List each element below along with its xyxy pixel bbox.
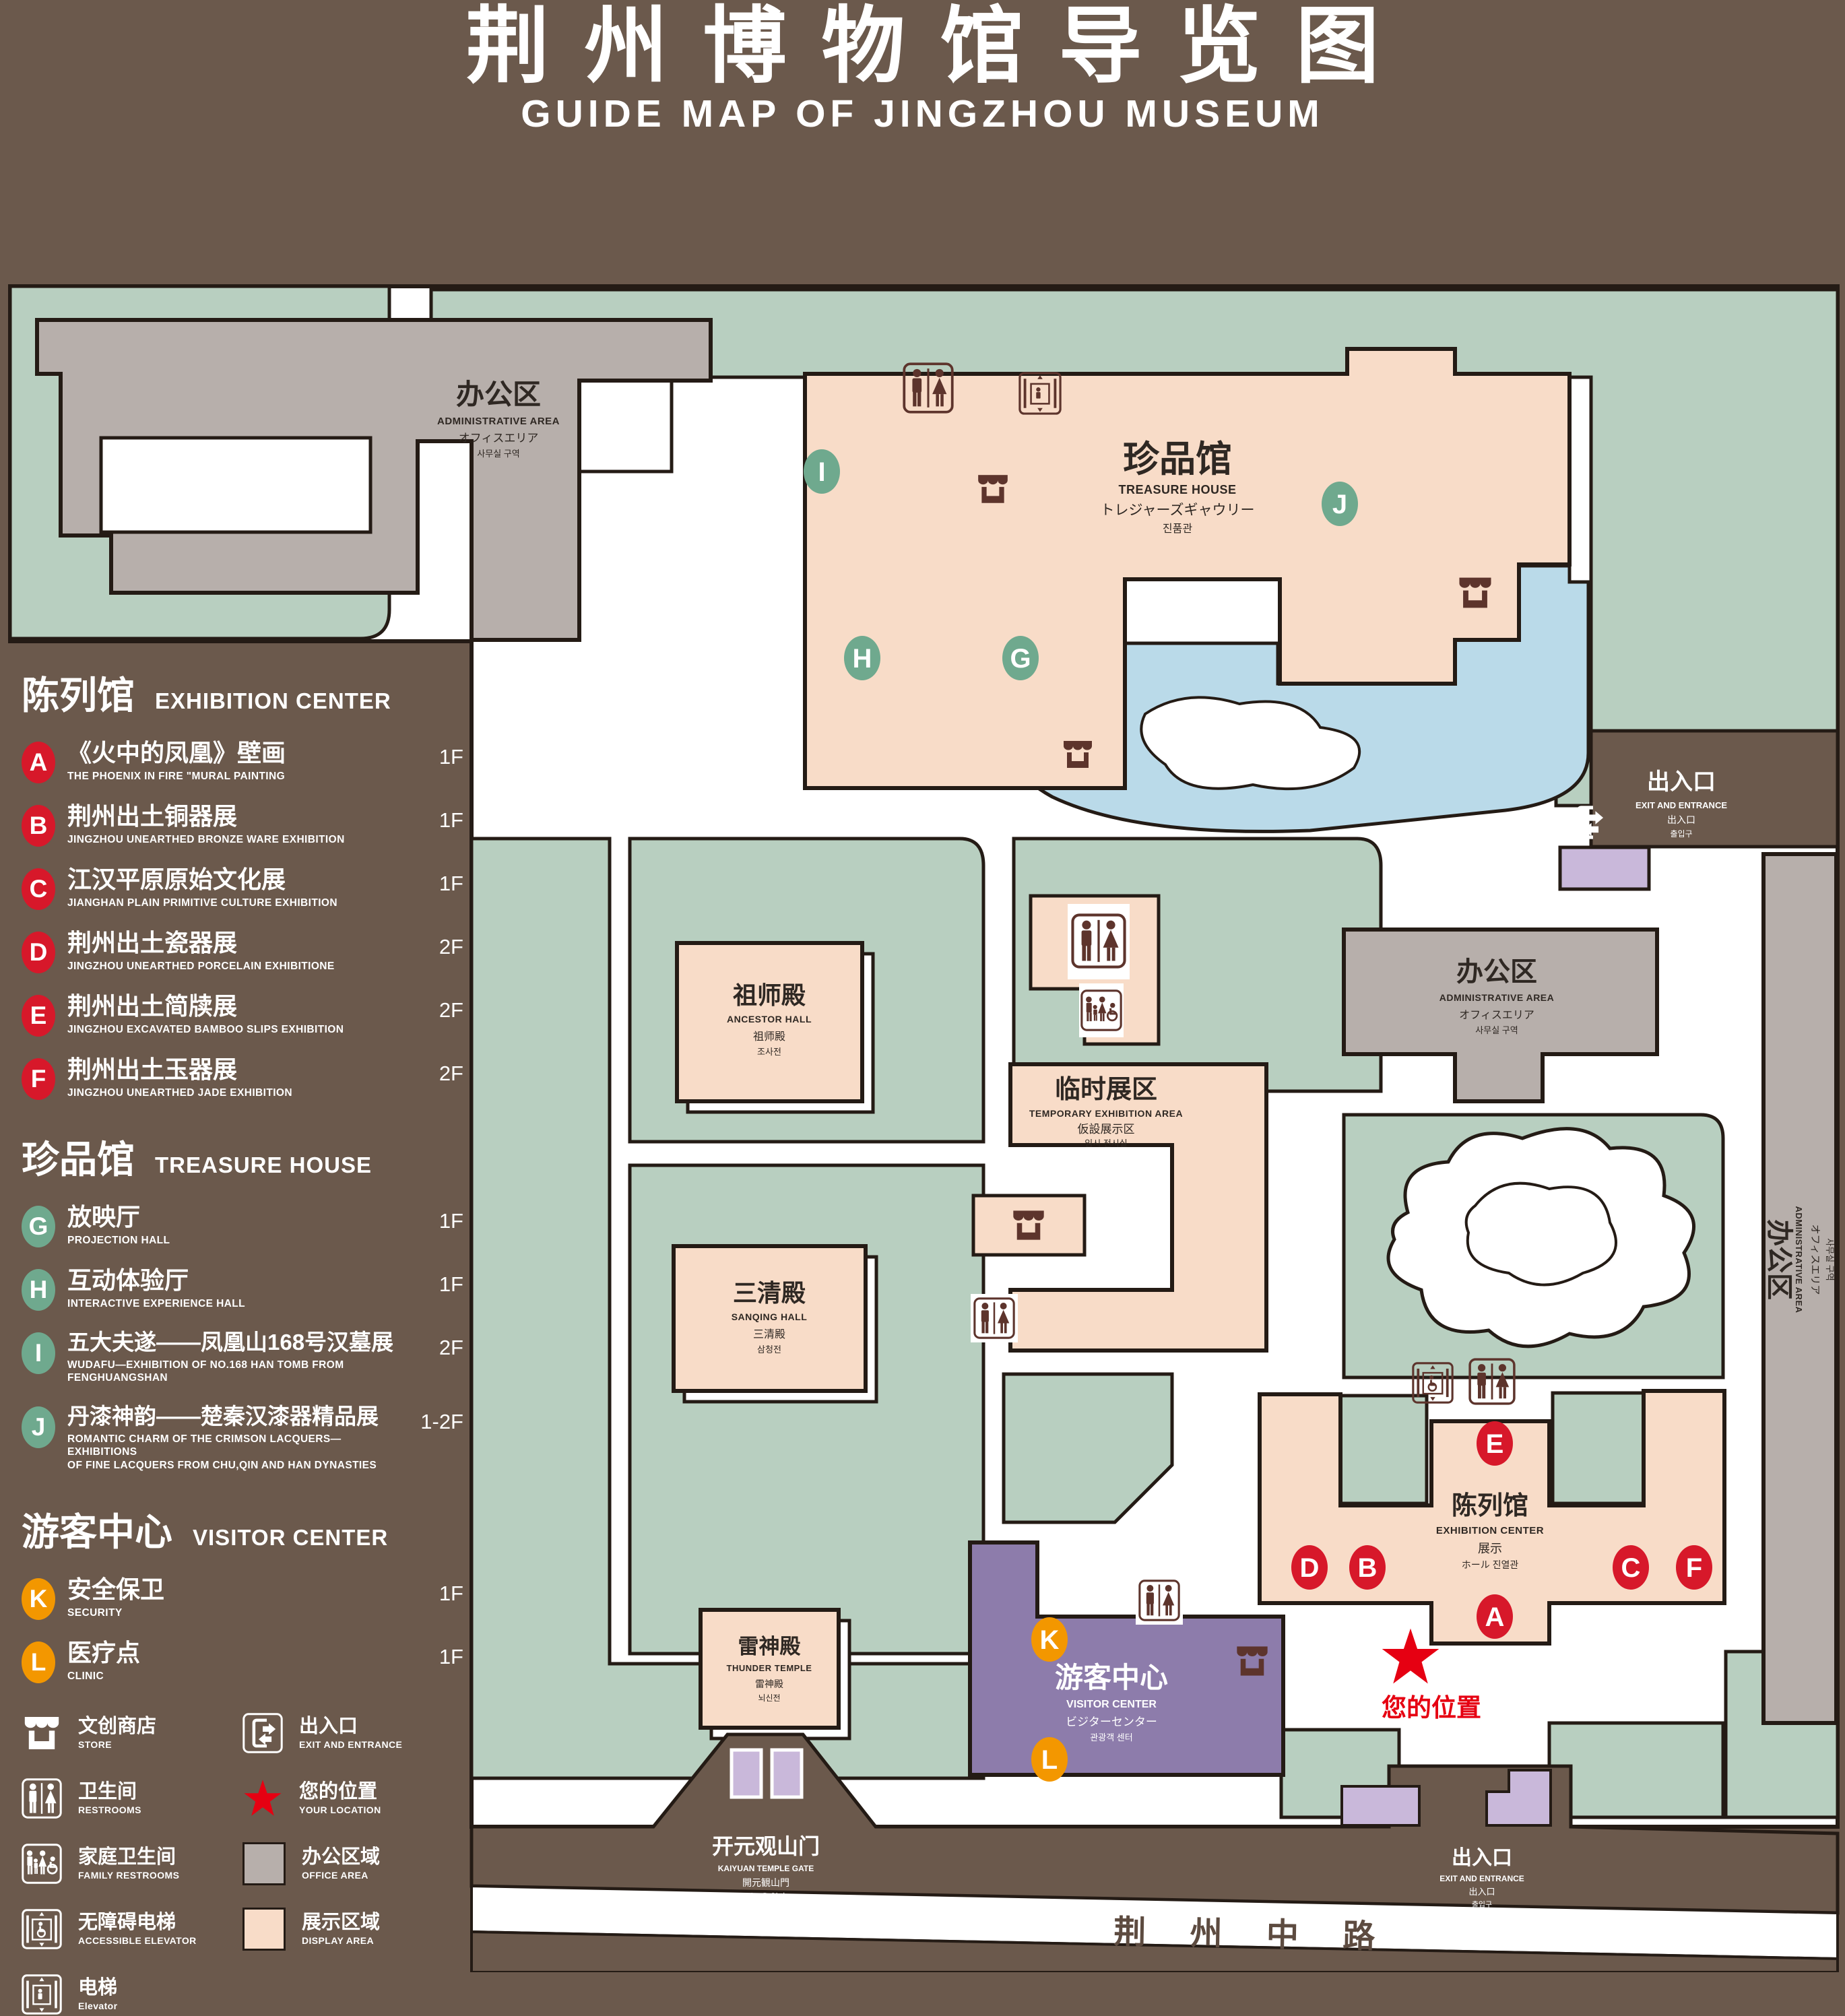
exit-ne-label-en: EXIT AND ENTRANCE [1636,800,1727,810]
marker-badge-j: J [22,1406,55,1448]
legend-section-visitor-center: 游客中心 VISITOR CENTER [22,1502,463,1557]
symbol-label-en: ACCESSIBLE ELEVATOR [78,1935,197,1946]
legend-symbol-exit: 出入口 EXIT AND ENTRANCE [242,1712,463,1755]
symbol-label-zh: 无障碍电梯 [78,1912,197,1932]
entrance-gate-block [1560,847,1649,889]
legend-item-g: G 放映厅 PROJECTION HALL 1F [22,1204,463,1247]
item-title: 荆州出土玉器展 [67,1056,292,1083]
symbol-label-en: Elevator [78,2001,117,2011]
symbol-label-en: FAMILY RESTROOMS [78,1870,179,1881]
temporary-label-en: TEMPORARY EXHIBITION AREA [1029,1108,1183,1119]
thunder-temple-label-ja: 雷神殿 [755,1679,783,1689]
item-title: 医疗点 [67,1639,140,1666]
thunder-temple-building: 雷神殿 THUNDER TEMPLE 雷神殿 뇌신전 [701,1610,849,1738]
svg-text:H: H [853,644,872,674]
park-ex-ne [1553,1393,1652,1503]
exit-ne-label-ko: 출입구 [1670,829,1692,839]
marker-j: J [1322,482,1358,526]
item-floor: 1F [439,745,463,769]
legend-item-i: I 五大夫遂——凤凰山168号汉墓展 WUDAFU—EXHIBITION OF … [22,1330,463,1385]
temporary-label-zh: 临时展区 [1055,1076,1157,1104]
svg-text:K: K [1040,1625,1060,1655]
legend-symbol-office-area: 办公区域 OFFICE AREA [242,1842,463,1885]
item-floor: 2F [439,1336,463,1360]
admin-strip-label-zh: 办公区 [1764,1219,1794,1300]
item-title: 荆州出土瓷器展 [67,930,335,956]
symbol-label-zh: 家庭卫生间 [78,1847,179,1867]
section-heading-zh: 珍品馆 [22,1130,135,1184]
your-location-label: 您的位置 [1382,1694,1481,1722]
office-area-swatch [242,1842,286,1885]
sanqing-hall-label-zh: 三清殿 [733,1279,806,1307]
treasure-house-label-zh: 珍品馆 [1123,439,1232,480]
exit-ne-label-zh: 出入口 [1647,769,1716,795]
marker-c: C [1613,1545,1649,1590]
item-subtitle: CLINIC [67,1670,140,1683]
item-title: 江汉平原原始文化展 [67,866,337,893]
symbol-label-zh: 办公区域 [302,1847,380,1867]
svg-text:I: I [818,457,825,487]
treasure-house-label-en: TREASURE HOUSE [1118,483,1236,496]
item-title: 荆州出土简牍展 [67,993,344,1020]
item-subtitle-2: OF FINE LACQUERS FROM CHU,QIN AND HAN DY… [67,1459,399,1472]
item-title: 放映厅 [67,1204,170,1231]
marker-k: K [1031,1617,1068,1662]
admin-e-label-zh: 办公区 [1456,957,1537,987]
symbol-label-zh: 您的位置 [299,1782,381,1802]
treasure-house-label-ko: 진품관 [1163,523,1192,535]
exit-icon [242,1712,283,1755]
admin-e-label-ja: オフィスエリア [1459,1010,1534,1021]
ancestor-hall-label-ja: 祖师殿 [753,1031,785,1043]
thunder-temple-label-en: THUNDER TEMPLE [727,1663,812,1673]
ancestor-hall-label-en: ANCESTOR HALL [727,1014,812,1025]
item-subtitle: JINGZHOU UNEARTHED JADE EXHIBITION [67,1086,292,1099]
item-floor: 2F [439,998,463,1022]
legend-item-a: A 《火中的凤凰》壁画 THE PHOENIX IN FIRE "MURAL P… [22,740,463,783]
symbol-label-en: STORE [78,1739,156,1750]
marker-i: I [804,449,840,494]
admin-strip-label-ja: オフィスエリア [1809,1225,1821,1295]
marker-badge-b: B [22,805,55,847]
admin-strip-label-en: ADMINISTRATIVE AREA [1794,1206,1804,1313]
symbol-legend: 文创商店 STORE 出入口 EXIT AND ENTRANCE 卫生间 RES… [22,1712,463,2016]
marker-badge-c: C [22,868,55,910]
marker-badge-k: K [22,1578,55,1620]
ancestor-hall-label-ko: 조사전 [757,1047,781,1057]
section-heading-zh: 陈列馆 [22,665,135,720]
gate-door [772,1750,802,1797]
item-subtitle: JINGZHOU EXCAVATED BAMBOO SLIPS EXHIBITI… [67,1023,344,1036]
item-title: 五大夫遂——凤凰山168号汉墓展 [67,1330,399,1355]
gate-label-ko: 산문을 열다 [746,1892,786,1901]
temporary-label-ko: 임시 전시실 [1085,1138,1127,1148]
restrooms-icon [22,1777,62,1820]
item-subtitle: WUDAFU—EXHIBITION OF NO.168 HAN TOMB FRO… [67,1359,399,1385]
gate-label-zh: 开元观山门 [712,1834,820,1858]
marker-b: B [1349,1545,1386,1590]
admin-e-label-en: ADMINISTRATIVE AREA [1439,992,1555,1003]
svg-text:G: G [1010,644,1031,674]
svg-text:E: E [1486,1429,1504,1459]
exhibition-center-label-ko: ホール 진열관 [1462,1559,1519,1570]
visitor-center-label-ko: 관광객 센터 [1090,1732,1132,1743]
item-title: 互动体验厅 [67,1267,245,1294]
temporary-label-ja: 仮設展示区 [1078,1123,1135,1136]
admin-strip-east: 사무실 구역 オフィスエリア ADMINISTRATIVE AREA 办公区 [1763,854,1836,1723]
svg-text:L: L [1041,1745,1058,1775]
marker-badge-i: I [22,1332,55,1374]
item-subtitle: JIANGHAN PLAIN PRIMITIVE CULTURE EXHIBIT… [67,897,337,909]
display-area-swatch [242,1908,286,1951]
item-floor: 1F [439,808,463,833]
legend-symbol-display-area: 展示区域 DISPLAY AREA [242,1908,463,1951]
item-title: 荆州出土铜器展 [67,803,345,830]
item-floor: 1F [439,872,463,896]
item-title: 《火中的凤凰》壁画 [67,740,286,767]
item-floor: 1F [439,1272,463,1297]
gate-door [732,1750,761,1797]
symbol-label-en: EXIT AND ENTRANCE [299,1739,402,1750]
marker-badge-g: G [22,1206,55,1247]
marker-badge-h: H [22,1269,55,1311]
legend-item-h: H 互动体验厅 INTERACTIVE EXPERIENCE HALL 1F [22,1267,463,1311]
item-floor: 1F [439,1582,463,1606]
legend-item-b: B 荆州出土铜器展 JINGZHOU UNEARTHED BRONZE WARE… [22,803,463,847]
treasure-house-label-ja: トレジャーズギャウリー [1101,502,1255,518]
exit-s-label-en: EXIT AND ENTRANCE [1439,1874,1524,1883]
exit-ne-label-ja: 出入口 [1667,814,1695,825]
legend-item-f: F 荆州出土玉器展 JINGZHOU UNEARTHED JADE EXHIBI… [22,1056,463,1100]
sanqing-hall-building: 三清殿 SANQING HALL 三清殿 삼청전 [674,1246,876,1402]
road-name: 荆 州 中 路 [1113,1914,1393,1955]
legend-symbol-accessible-elevator: 无障碍电梯 ACCESSIBLE ELEVATOR [22,1908,242,1951]
admin-nw-label-ja: オフィスエリア [459,432,539,445]
exit-s-label-ja: 出入口 [1468,1887,1495,1897]
legend-item-e: E 荆州出土简牍展 JINGZHOU EXCAVATED BAMBOO SLIP… [22,993,463,1037]
exit-s-label-ko: 출입구 [1472,1900,1492,1909]
exhibition-center-label-zh: 陈列馆 [1452,1492,1528,1520]
visitor-center-label-en: VISITOR CENTER [1066,1699,1157,1710]
exhibition-center-label-ja: 展示 [1478,1542,1502,1555]
marker-badge-l: L [22,1641,55,1683]
marker-g: G [1002,636,1039,680]
legend-symbol-store: 文创商店 STORE [22,1712,242,1755]
svg-text:F: F [1686,1553,1702,1583]
marker-l: L [1031,1737,1068,1782]
legend-item-c: C 江汉平原原始文化展 JIANGHAN PLAIN PRIMITIVE CUL… [22,866,463,910]
elevator-icon [22,1973,62,2016]
symbol-label-en: YOUR LOCATION [299,1804,381,1815]
legend-symbol-your-location: 您的位置 YOUR LOCATION [242,1777,463,1820]
admin-nw-label-zh: 办公区 [456,379,541,410]
legend-item-k: K 安全保卫 SECURITY 1F [22,1576,463,1620]
legend-section-exhibition-center: 陈列馆 EXHIBITION CENTER [22,665,463,720]
symbol-label-zh: 文创商店 [78,1716,156,1736]
admin-nw-label-en: ADMINISTRATIVE AREA [437,416,560,427]
marker-h: H [844,636,880,680]
visitor-center-label-zh: 游客中心 [1055,1662,1168,1693]
symbol-label-en: RESTROOMS [78,1804,141,1815]
symbol-label-en: OFFICE AREA [302,1870,380,1881]
item-floor: 1-2F [420,1410,463,1434]
item-floor: 2F [439,935,463,959]
legend-symbol-elevator: 电梯 Elevator [22,1973,247,2016]
legend-section-treasure-house: 珍品馆 TREASURE HOUSE [22,1130,463,1184]
exhibition-center-label-en: EXHIBITION CENTER [1436,1525,1544,1536]
symbol-label-en: DISPLAY AREA [302,1935,380,1946]
item-floor: 1F [439,1645,463,1669]
store-icon [22,1712,62,1755]
item-subtitle: SECURITY [67,1606,164,1619]
marker-d: D [1291,1545,1328,1590]
legend-item-j: J 丹漆神韵——楚秦汉漆器精品展 ROMANTIC CHARM OF THE C… [22,1404,463,1472]
marker-f: F [1676,1545,1712,1590]
marker-badge-d: D [22,932,55,973]
thunder-temple-label-zh: 雷神殿 [738,1635,801,1658]
exit-s-label-zh: 出入口 [1452,1847,1512,1869]
ancestor-hall-building: 祖师殿 ANCESTOR HALL 祖师殿 조사전 [677,943,873,1112]
sanqing-hall-label-en: SANQING HALL [732,1311,808,1322]
section-heading-en: VISITOR CENTER [193,1525,388,1551]
visitor-center-label-ja: ビジターセンター [1066,1716,1157,1728]
marker-badge-a: A [22,742,55,783]
item-subtitle: ROMANTIC CHARM OF THE CRIMSON LACQUERS—E… [67,1433,399,1459]
item-floor: 2F [439,1062,463,1086]
item-subtitle: JINGZHOU UNEARTHED PORCELAIN EXHIBITIONE [67,960,335,973]
legend-item-l: L 医疗点 CLINIC 1F [22,1639,463,1683]
legend-item-d: D 荆州出土瓷器展 JINGZHOU UNEARTHED PORCELAIN E… [22,930,463,973]
svg-text:B: B [1358,1553,1378,1583]
accessible-elevator-icon [22,1908,62,1951]
symbol-label-zh: 出入口 [299,1716,402,1736]
item-title: 丹漆神韵——楚秦汉漆器精品展 [67,1404,399,1429]
symbol-label-zh: 展示区域 [302,1912,380,1932]
legend-panel: 陈列馆 EXHIBITION CENTER A 《火中的凤凰》壁画 THE PH… [22,665,463,2016]
item-floor: 1F [439,1209,463,1233]
marker-badge-e: E [22,995,55,1037]
park-court-lower [630,1165,983,1654]
marker-badge-f: F [22,1058,55,1100]
gate-label-en: KAIYUAN TEMPLE GATE [718,1864,814,1873]
sanqing-hall-label-ko: 삼청전 [757,1344,781,1355]
family-restrooms-icon [22,1842,62,1885]
item-subtitle: JINGZHOU UNEARTHED BRONZE WARE EXHIBITIO… [67,833,345,846]
svg-text:A: A [1485,1602,1505,1632]
park-ex-nw [1332,1396,1427,1503]
admin-e-label-ko: 사무실 구역 [1475,1025,1518,1035]
svg-text:C: C [1621,1553,1641,1583]
item-subtitle: THE PHOENIX IN FIRE "MURAL PAINTING [67,770,286,783]
svg-text:D: D [1300,1553,1320,1583]
svg-text:J: J [1332,490,1347,519]
your-location-star [242,1777,283,1820]
entrance-gate-block [1342,1786,1419,1825]
item-title: 安全保卫 [67,1576,164,1603]
symbol-label-zh: 电梯 [78,1978,117,1998]
symbol-label-zh: 卫生间 [78,1782,141,1802]
section-heading-en: TREASURE HOUSE [155,1152,372,1178]
legend-symbol-restrooms: 卫生间 RESTROOMS [22,1777,242,1820]
legend-symbol-family-restrooms: 家庭卫生间 FAMILY RESTROOMS [22,1842,242,1885]
sanqing-hall-label-ja: 三清殿 [753,1328,785,1340]
gate-label-ja: 開元観山門 [742,1877,789,1888]
admin-nw-label-ko: 사무실 구역 [477,449,519,459]
section-heading-zh: 游客中心 [22,1502,172,1557]
admin-strip-label-ko: 사무실 구역 [1825,1238,1835,1280]
park-ex-se [1549,1723,1723,1817]
thunder-temple-label-ko: 뇌신전 [758,1693,780,1703]
item-subtitle: PROJECTION HALL [67,1234,170,1247]
marker-e: E [1477,1421,1513,1466]
section-heading-en: EXHIBITION CENTER [155,688,391,714]
marker-a: A [1477,1594,1513,1639]
ancestor-hall-label-zh: 祖师殿 [733,981,806,1009]
item-subtitle: INTERACTIVE EXPERIENCE HALL [67,1297,245,1310]
